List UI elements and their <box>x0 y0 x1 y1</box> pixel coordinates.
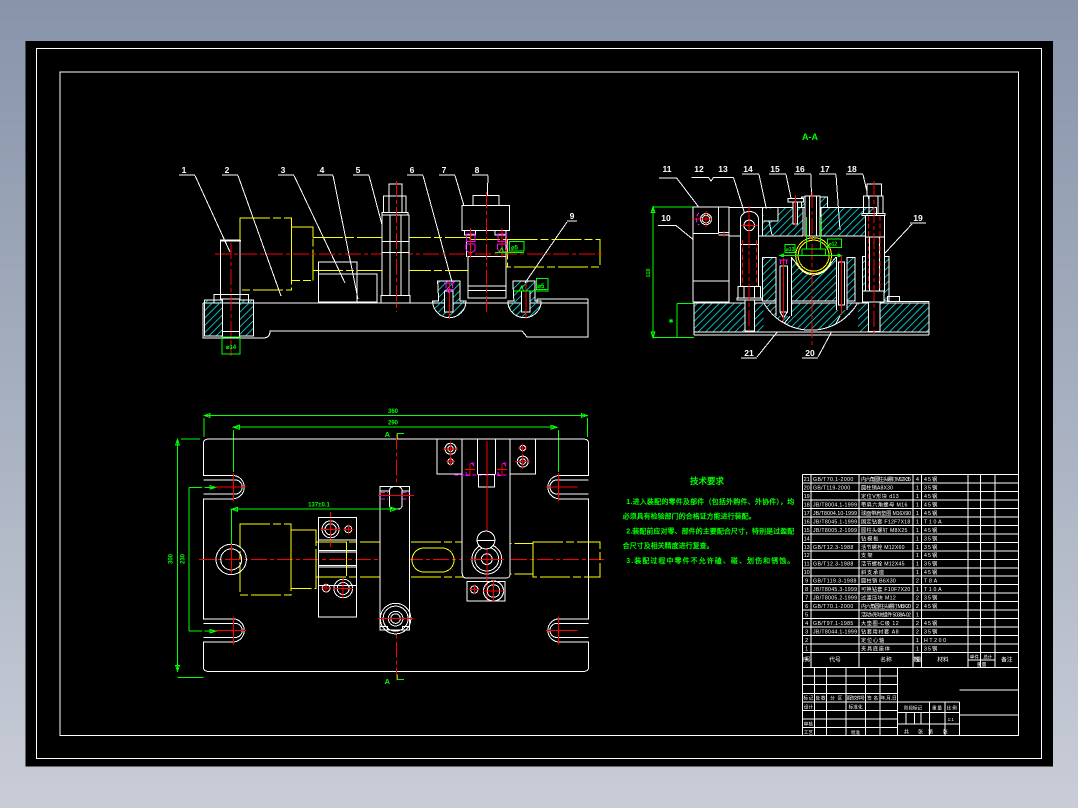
svg-text:3: 3 <box>805 629 808 635</box>
svg-text:1: 1 <box>916 545 919 551</box>
svg-text:GB/T119-2000: GB/T119-2000 <box>813 486 850 492</box>
svg-text:1: 1 <box>916 502 919 508</box>
svg-text:JB/T8004.1-1999: JB/T8004.1-1999 <box>813 502 857 508</box>
svg-text:16: 16 <box>804 519 810 525</box>
svg-text:1: 1 <box>916 570 919 576</box>
svg-text:35钢: 35钢 <box>924 594 937 602</box>
svg-text:固定钻套 F12F7X18: 固定钻套 F12F7X18 <box>861 517 910 525</box>
svg-text:A: A <box>385 677 391 686</box>
svg-text:设计: 设计 <box>804 703 814 710</box>
svg-text:GB/T70.1-2000: GB/T70.1-2000 <box>813 477 853 483</box>
svg-text:单件: 单件 <box>970 654 979 661</box>
svg-text:张: 张 <box>943 729 948 736</box>
svg-text:JB/T8005.2-1999: JB/T8005.2-1999 <box>813 596 857 602</box>
svg-text:1: 1 <box>916 562 919 568</box>
svg-text:45钢: 45钢 <box>924 500 937 508</box>
svg-text:钻套用衬套 A8: 钻套用衬套 A8 <box>861 627 899 635</box>
svg-text:1: 1 <box>916 612 919 618</box>
svg-text:1: 1 <box>805 646 808 652</box>
svg-text:GB/T119.3-1988: GB/T119.3-1988 <box>813 579 857 585</box>
svg-text:19: 19 <box>804 494 810 500</box>
svg-text:3: 3 <box>281 165 286 175</box>
svg-text:活动V形块组件 5038A-02: 活动V形块组件 5038A-02 <box>861 610 911 618</box>
svg-text:T8A: T8A <box>924 579 938 585</box>
svg-text:活节螺栓 M12X45: 活节螺栓 M12X45 <box>861 560 905 568</box>
svg-text:支架: 支架 <box>861 551 873 559</box>
svg-text:17: 17 <box>820 164 830 174</box>
svg-text:✱: ✱ <box>668 318 673 325</box>
svg-text:20: 20 <box>804 486 810 492</box>
svg-text:JB/T8004.10-1999: JB/T8004.10-1999 <box>813 511 857 517</box>
svg-text:2.装配前应对零、部件的主要配合尺寸，特别是过盈配: 2.装配前应对零、部件的主要配合尺寸，特别是过盈配 <box>626 526 794 535</box>
svg-text:必须具有检验部门的合格证方能进行装配。: 必须具有检验部门的合格证方能进行装配。 <box>622 512 756 521</box>
svg-text:1: 1 <box>182 165 187 175</box>
svg-text:45钢: 45钢 <box>924 526 937 534</box>
svg-text:T10A: T10A <box>924 587 942 593</box>
svg-text:110: 110 <box>646 269 652 278</box>
svg-text:张: 张 <box>918 729 923 736</box>
svg-text:内六角圆柱头螺钉 M8X20: 内六角圆柱头螺钉 M8X20 <box>861 602 911 610</box>
svg-text:可换钻套 F10F7X20: 可换钻套 F10F7X20 <box>861 585 910 593</box>
svg-text:35钢: 35钢 <box>924 484 937 492</box>
svg-text:T10A: T10A <box>924 519 942 525</box>
svg-text:2: 2 <box>916 629 919 635</box>
svg-text:定位V形块 d13: 定位V形块 d13 <box>861 492 899 500</box>
svg-text:16: 16 <box>795 164 805 174</box>
svg-text:14: 14 <box>743 164 753 174</box>
svg-text:工艺: 工艺 <box>804 730 814 735</box>
svg-text:标准化: 标准化 <box>849 703 863 710</box>
svg-text:材料: 材料 <box>937 656 949 664</box>
svg-text:带肩六角螺母 M16: 带肩六角螺母 M16 <box>861 500 908 508</box>
svg-text:4: 4 <box>805 621 808 627</box>
svg-text:⌀5: ⌀5 <box>511 246 519 252</box>
svg-text:13: 13 <box>718 164 728 174</box>
svg-text:批准: 批准 <box>851 729 861 736</box>
svg-text:230: 230 <box>181 553 187 564</box>
svg-text:18: 18 <box>847 164 857 174</box>
svg-text:3.装配过程中零件不允许磕、碰、划伤和锈蚀。: 3.装配过程中零件不允许磕、碰、划伤和锈蚀。 <box>626 556 794 565</box>
svg-text:35钢: 35钢 <box>924 534 937 542</box>
svg-text:35钢: 35钢 <box>924 560 937 568</box>
svg-text:1: 1 <box>916 638 919 644</box>
svg-text:JB/T8005.2-1999: JB/T8005.2-1999 <box>813 528 857 534</box>
svg-text:1: 1 <box>916 646 919 652</box>
svg-text:HT200: HT200 <box>924 638 946 644</box>
svg-text:圆柱头螺钉 M8X25: 圆柱头螺钉 M8X25 <box>861 526 908 534</box>
svg-text:1: 1 <box>916 494 919 500</box>
svg-text:球面带肩垫圈 M16X90: 球面带肩垫圈 M16X90 <box>861 509 911 517</box>
svg-text:11: 11 <box>663 164 672 174</box>
svg-text:A: A <box>385 430 391 439</box>
svg-text:1: 1 <box>916 519 919 525</box>
svg-text:夹具底座体: 夹具底座体 <box>861 644 891 652</box>
svg-text:2: 2 <box>225 165 230 175</box>
svg-text:⌀13: ⌀13 <box>786 247 795 253</box>
svg-text:2: 2 <box>805 638 808 644</box>
svg-text:GB/T70.1-2000: GB/T70.1-2000 <box>813 604 853 610</box>
svg-text:GB/T97.1-1985: GB/T97.1-1985 <box>813 621 853 627</box>
svg-text:2: 2 <box>916 604 919 610</box>
svg-text:7: 7 <box>805 596 808 602</box>
svg-text:2: 2 <box>916 579 919 585</box>
svg-text:重量: 重量 <box>932 705 942 712</box>
svg-text:活节螺栓 M12X60: 活节螺栓 M12X60 <box>861 543 905 551</box>
svg-text:1: 1 <box>916 486 919 492</box>
svg-text:1: 1 <box>916 528 919 534</box>
svg-text:8: 8 <box>805 587 808 593</box>
svg-text:35钢: 35钢 <box>924 543 937 551</box>
svg-text:5: 5 <box>805 612 808 618</box>
svg-text:6: 6 <box>410 165 415 175</box>
svg-text:1.进入装配的零件及部件（包括外购件、外协件），均: 1.进入装配的零件及部件（包括外购件、外协件），均 <box>626 497 794 506</box>
svg-text:圆柱销 B6X30: 圆柱销 B6X30 <box>861 577 896 585</box>
svg-text:GB/T12.3-1988: GB/T12.3-1988 <box>813 562 853 568</box>
svg-text:序号: 序号 <box>803 656 811 664</box>
svg-text:8: 8 <box>475 165 480 175</box>
svg-text:1: 1 <box>916 536 919 542</box>
svg-text:斜支承座: 斜支承座 <box>861 568 884 576</box>
svg-text:45钢: 45钢 <box>924 492 937 500</box>
svg-text:35钢: 35钢 <box>924 644 937 652</box>
svg-text:5: 5 <box>356 165 361 175</box>
svg-text:11: 11 <box>804 562 810 568</box>
svg-text:阶段标记: 阶段标记 <box>904 705 922 712</box>
svg-text:JB/T8045.3-1999: JB/T8045.3-1999 <box>813 587 857 593</box>
svg-text:35钢: 35钢 <box>924 627 937 635</box>
svg-text:合尺寸及相关精度进行复查。: 合尺寸及相关精度进行复查。 <box>622 541 714 550</box>
svg-text:定位心轴: 定位心轴 <box>861 636 884 644</box>
svg-text:过渡压块 M12: 过渡压块 M12 <box>861 594 896 602</box>
svg-text:数量: 数量 <box>913 656 921 664</box>
svg-text:21: 21 <box>744 348 754 358</box>
svg-text:JB/T8045.1-1999: JB/T8045.1-1999 <box>813 519 857 525</box>
svg-text:21: 21 <box>804 477 810 483</box>
svg-text:360: 360 <box>388 409 399 415</box>
svg-text:7: 7 <box>442 165 447 175</box>
svg-text:⌀14: ⌀14 <box>226 345 237 351</box>
svg-text:审核: 审核 <box>804 721 814 728</box>
svg-text:处数: 处数 <box>816 695 826 702</box>
svg-text:共: 共 <box>904 729 909 736</box>
svg-text:年,月,日: 年,月,日 <box>881 695 897 702</box>
svg-text:第: 第 <box>928 729 933 736</box>
svg-text:10: 10 <box>661 213 671 223</box>
svg-text:⌀12: ⌀12 <box>829 242 838 248</box>
svg-text:18: 18 <box>804 502 810 508</box>
svg-text:JB/T8044.1-1999: JB/T8044.1-1999 <box>813 629 857 635</box>
svg-text:45钢: 45钢 <box>924 568 937 576</box>
svg-text:45钢: 45钢 <box>924 509 937 517</box>
svg-text:45钢: 45钢 <box>924 602 937 610</box>
svg-text:13: 13 <box>804 545 810 551</box>
svg-text:14: 14 <box>804 536 810 542</box>
svg-text:GB/T12.3-1988: GB/T12.3-1988 <box>813 545 853 551</box>
svg-text:4: 4 <box>320 165 325 175</box>
svg-text:4: 4 <box>916 477 919 483</box>
svg-text:1: 1 <box>916 511 919 517</box>
svg-text:重量: 重量 <box>977 661 987 668</box>
svg-text:45钢: 45钢 <box>924 551 937 559</box>
svg-text:6: 6 <box>805 604 808 610</box>
svg-text:名称: 名称 <box>880 656 892 664</box>
svg-text:钻模板: 钻模板 <box>861 534 879 542</box>
svg-text:比例: 比例 <box>947 705 957 712</box>
svg-text:300: 300 <box>169 553 175 564</box>
svg-text:⌀5: ⌀5 <box>537 284 545 290</box>
svg-text:A-A: A-A <box>802 132 818 142</box>
svg-text:15: 15 <box>804 528 810 534</box>
svg-text:1:1: 1:1 <box>948 717 955 722</box>
svg-text:290: 290 <box>388 421 399 427</box>
svg-text:10: 10 <box>804 570 810 576</box>
svg-text:19: 19 <box>913 213 923 223</box>
svg-text:45钢: 45钢 <box>924 475 937 483</box>
svg-text:技术要求: 技术要求 <box>690 476 725 486</box>
svg-text:2: 2 <box>916 596 919 602</box>
svg-text:12: 12 <box>694 164 704 174</box>
svg-text:签名: 签名 <box>867 695 878 702</box>
svg-text:1: 1 <box>916 553 919 559</box>
svg-text:9: 9 <box>570 211 575 221</box>
svg-text:15: 15 <box>770 164 780 174</box>
svg-text:圆柱销A8X30: 圆柱销A8X30 <box>861 484 893 492</box>
svg-text:9: 9 <box>805 579 808 585</box>
svg-text:总计: 总计 <box>983 654 992 661</box>
svg-text:备注: 备注 <box>1001 656 1013 664</box>
svg-text:137±0.1: 137±0.1 <box>308 502 330 508</box>
svg-text:20: 20 <box>805 348 815 358</box>
svg-text:2: 2 <box>916 621 919 627</box>
svg-text:1: 1 <box>916 587 919 593</box>
svg-text:更改文件号: 更改文件号 <box>846 695 865 702</box>
svg-text:内六角圆柱头螺钉 M12X35: 内六角圆柱头螺钉 M12X35 <box>861 475 911 483</box>
svg-text:45钢: 45钢 <box>924 619 937 627</box>
svg-text:标记: 标记 <box>803 695 813 702</box>
svg-text:大垫圈-C级 12: 大垫圈-C级 12 <box>861 619 899 627</box>
svg-text:代号: 代号 <box>829 656 841 664</box>
svg-text:12: 12 <box>804 553 810 559</box>
svg-text:17: 17 <box>804 511 810 517</box>
